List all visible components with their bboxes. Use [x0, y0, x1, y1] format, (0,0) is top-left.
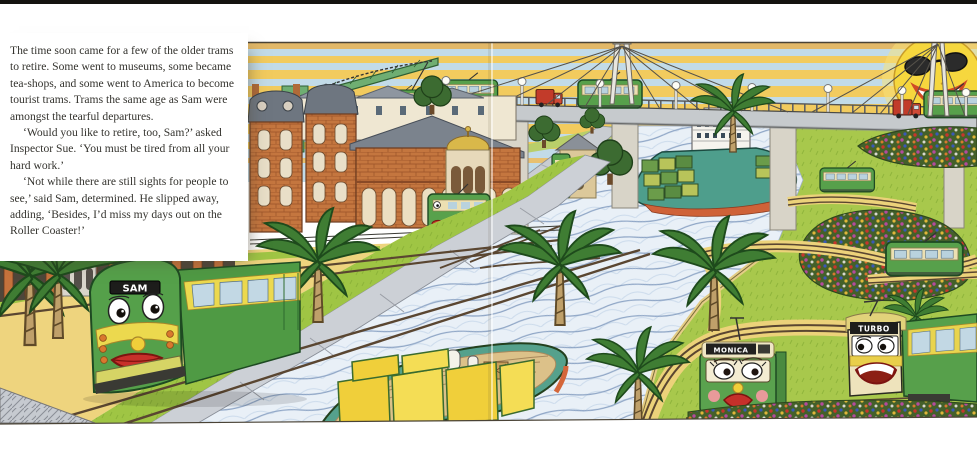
sam-board-text: SAM — [123, 284, 148, 295]
station-tower-2 — [304, 85, 358, 223]
story-paragraph: ‘Would you like to retire, too, Sam?’ as… — [10, 125, 238, 174]
monica-board-text: MONICA — [714, 347, 749, 355]
story-paragraph: ‘Not while there are still sights for pe… — [10, 174, 238, 240]
sam-headlight — [131, 337, 145, 351]
scan-top-edge — [0, 0, 977, 4]
turbo-board-text: TURBO — [858, 325, 890, 334]
story-paragraph: The time soon came for a few of the olde… — [10, 43, 238, 125]
story-text-box: The time soon came for a few of the olde… — [0, 33, 248, 261]
monica-cheek-left — [708, 390, 720, 402]
monica-cheek-right — [756, 390, 768, 402]
book-page-spread: SAM — [0, 0, 977, 460]
monica-headlight — [733, 383, 743, 393]
page-fold-crease — [488, 4, 493, 424]
station-tower-1 — [248, 84, 304, 232]
